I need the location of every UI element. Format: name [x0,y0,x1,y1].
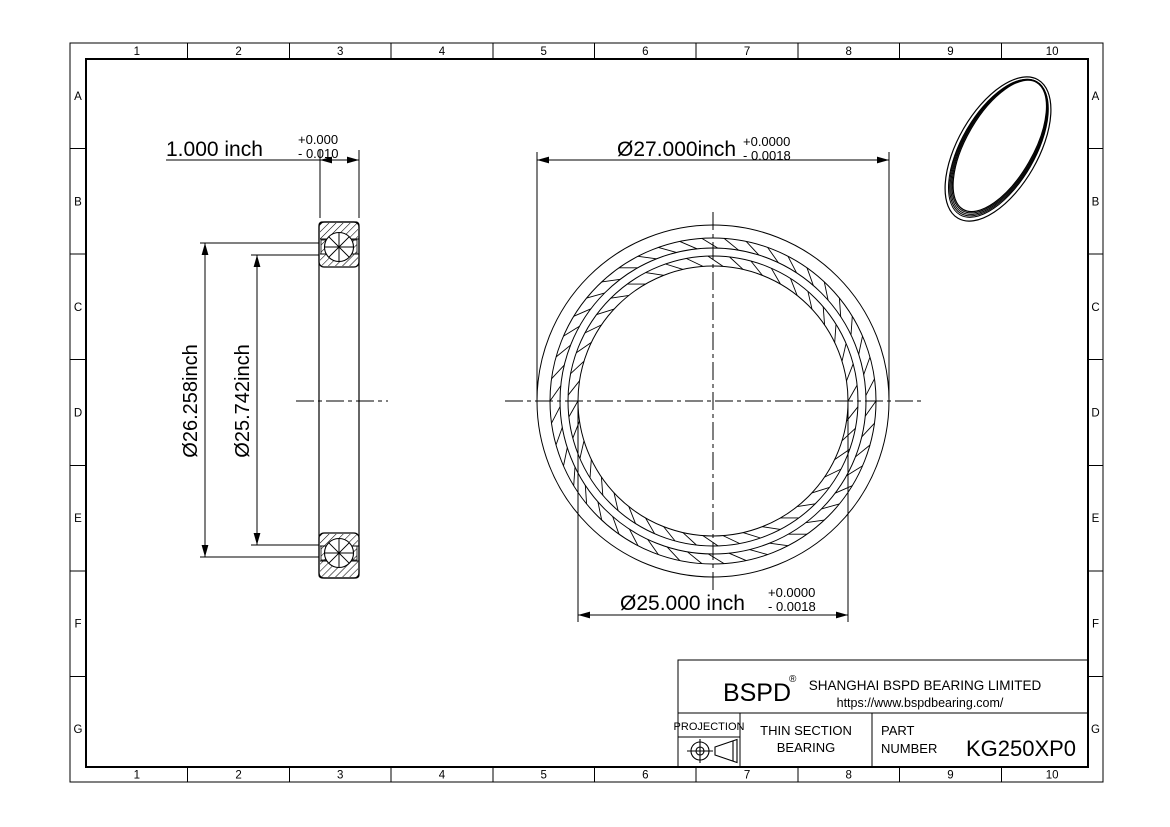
cage-pocket-tick [680,241,697,248]
cage-pocket-tick [750,550,768,555]
grid-col-label-bottom: 7 [744,770,750,782]
iso-view [923,60,1072,239]
dim-width-tol-minus: - 0.010 [298,146,338,161]
grid-col-label-top: 6 [642,46,648,58]
dim-bore-tol-plus: +0.0000 [768,585,815,600]
cage-pocket-tick [686,259,703,267]
dim-inner-race-text: Ø25.742inch [232,344,254,457]
dim-width-text: 1.000 inch [166,138,263,161]
cage-pocket-tick [708,554,724,564]
grid-row-label-right: G [1091,724,1100,736]
company-name: SHANGHAI BSPD BEARING LIMITED [809,678,1042,693]
section-outline [319,222,359,578]
grid-row-label-left: C [74,302,82,314]
cage-pocket-tick [839,298,840,317]
cage-pocket-tick [601,477,602,495]
cage-pocket-tick [658,247,676,252]
cage-pocket-tick [646,273,664,276]
front-view [505,212,925,590]
cage-pocket-tick [762,527,780,530]
grid-row-label-right: D [1091,408,1099,420]
cage-pocket-tick [556,427,562,445]
grid-row-label-right: A [1092,91,1100,103]
grid-col-label-bottom: 9 [947,770,953,782]
cage-pocket-tick [569,401,578,417]
company-logo: BSPD [723,679,791,707]
cage-pocket-tick [723,536,740,544]
dim-od-text: Ø27.000inch [617,138,736,161]
grid-col-label-bottom: 2 [235,770,241,782]
cage-pocket-tick [574,467,575,486]
section-dimensions: 1.000 inch +0.000 - 0.010 Ø26.258inch Ø2… [166,132,359,557]
iso-outer-edge [923,60,1072,239]
drawing-sheet: 1122334455667788991010AABBCCDDEEFFGG [0,0,1170,827]
cage-pocket-tick [864,357,870,375]
section-view [296,222,388,578]
dim-bore-text: Ø25.000 inch [620,592,745,615]
cage-pocket-tick [823,307,824,325]
grid-col-label-top: 8 [846,46,852,58]
grid-col-label-top: 7 [744,46,750,58]
grid-row-label-right: E [1092,513,1100,525]
projection-label: PROJECTION [674,721,745,733]
cage-pocket-tick [835,324,836,342]
title-block: BSPD ® SHANGHAI BSPD BEARING LIMITED htt… [674,660,1088,767]
cage-pocket-tick [851,316,852,335]
dim-width-tol-plus: +0.000 [298,132,338,147]
grid-col-label-top: 2 [235,46,241,58]
grid-col-label-top: 4 [439,46,446,58]
dim-outer-race-text: Ø26.258inch [180,344,202,457]
part-label-line1: PART [881,723,915,738]
grid-col-label-bottom: 6 [642,770,648,782]
cage-pocket-tick [708,256,723,266]
ball-asterisk [325,539,354,568]
cage-pocket-tick [585,485,586,504]
grid-row-label-left: G [74,724,83,736]
grid-col-label-bottom: 3 [337,770,343,782]
grid-col-label-top: 9 [947,46,953,58]
cage-pocket-tick [590,460,591,478]
grid-row-label-right: F [1092,619,1099,631]
grid-row-label-left: D [74,408,82,420]
grid-row-label-right: C [1091,302,1099,314]
cage-pocket-tick [552,407,561,424]
projection-symbol-icon [687,739,737,763]
cage-pocket-tick [866,379,875,396]
grid-row-label-right: B [1092,196,1100,208]
grid-row-label-left: E [74,513,82,525]
cage-pocket-tick [848,385,857,401]
cage-pocket-tick [703,536,718,546]
ball-asterisk [325,233,354,262]
cage-pocket-tick [859,336,863,354]
grid-row-label-left: A [74,91,82,103]
grid-col-label-bottom: 4 [439,770,446,782]
company-website: https://www.bspdbearing.com/ [837,696,1004,710]
section-top-block [319,222,359,267]
registered-mark: ® [789,674,797,685]
product-type-line1: THIN SECTION [760,723,852,738]
part-number-value: KG250XP0 [966,736,1076,761]
grid-col-label-bottom: 1 [134,770,140,782]
grid-col-label-bottom: 8 [846,770,852,782]
grid-col-label-top: 1 [134,46,140,58]
dim-bore-tol-minus: - 0.0018 [768,599,816,614]
grid-col-label-top: 3 [337,46,343,58]
cage-pocket-tick [702,238,718,248]
grid-row-label-left: F [74,619,81,631]
cage-pocket-tick [847,364,854,381]
grid-row-label-left: B [74,196,82,208]
cage-pocket-tick [865,401,876,416]
grid-col-label-top: 10 [1046,46,1059,58]
cage-pocket-tick [743,533,761,538]
part-label-line2: NUMBER [881,741,937,756]
cage-pocket-tick [580,441,584,459]
dim-od-tol-plus: +0.0000 [743,134,790,149]
grid-col-label-bottom: 10 [1046,770,1059,782]
grid-col-label-bottom: 5 [540,770,546,782]
grid-col-label-top: 5 [540,46,546,58]
dim-od-tol-minus: - 0.0018 [743,148,791,163]
cage-pocket-tick [729,553,746,560]
section-bottom-block [319,533,359,578]
cage-pocket-tick [638,256,657,259]
cage-pocket-tick [666,264,684,269]
cage-pocket-tick [550,386,561,401]
cage-pocket-tick [564,448,568,466]
cage-pocket-tick [842,343,846,361]
product-type-line2: BEARING [777,740,836,755]
cage-pocket-tick [770,543,789,546]
